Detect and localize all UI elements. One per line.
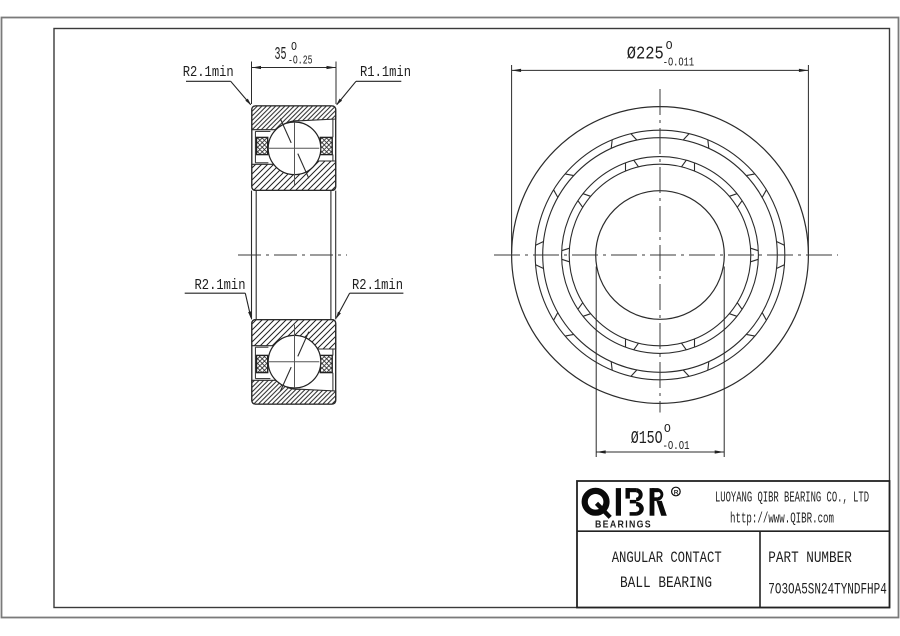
- svg-text:http://www.QIBR.com: http://www.QIBR.com: [730, 512, 834, 528]
- svg-text:7O3OA5SN24TYNDFHP4: 7O3OA5SN24TYNDFHP4: [768, 580, 887, 598]
- svg-text:R2.1min: R2.1min: [352, 277, 403, 294]
- svg-text:-O.25: -O.25: [288, 54, 313, 67]
- svg-text:-O.O1: -O.O1: [663, 440, 690, 453]
- svg-text:O: O: [664, 423, 671, 436]
- svg-text:R1.1min: R1.1min: [360, 64, 411, 81]
- svg-text:ANGULAR CONTACT: ANGULAR CONTACT: [612, 549, 722, 567]
- svg-text:BEARINGS: BEARINGS: [595, 520, 652, 531]
- svg-text:Ø15O: Ø15O: [631, 429, 663, 449]
- svg-text:R2.1min: R2.1min: [195, 277, 246, 294]
- svg-text:35: 35: [275, 45, 287, 65]
- svg-text:PART NUMBER: PART NUMBER: [768, 549, 852, 567]
- svg-text:R: R: [674, 489, 679, 496]
- svg-text:LUOYANG QIBR BEARING CO., LTD: LUOYANG QIBR BEARING CO., LTD: [715, 491, 869, 507]
- svg-text:-O.O11: -O.O11: [663, 56, 695, 69]
- svg-text:O: O: [291, 41, 297, 54]
- svg-text:Ø225: Ø225: [627, 44, 664, 64]
- svg-text:BALL BEARING: BALL BEARING: [620, 574, 712, 592]
- svg-text:R2.1min: R2.1min: [183, 64, 234, 81]
- svg-text:O: O: [666, 40, 673, 53]
